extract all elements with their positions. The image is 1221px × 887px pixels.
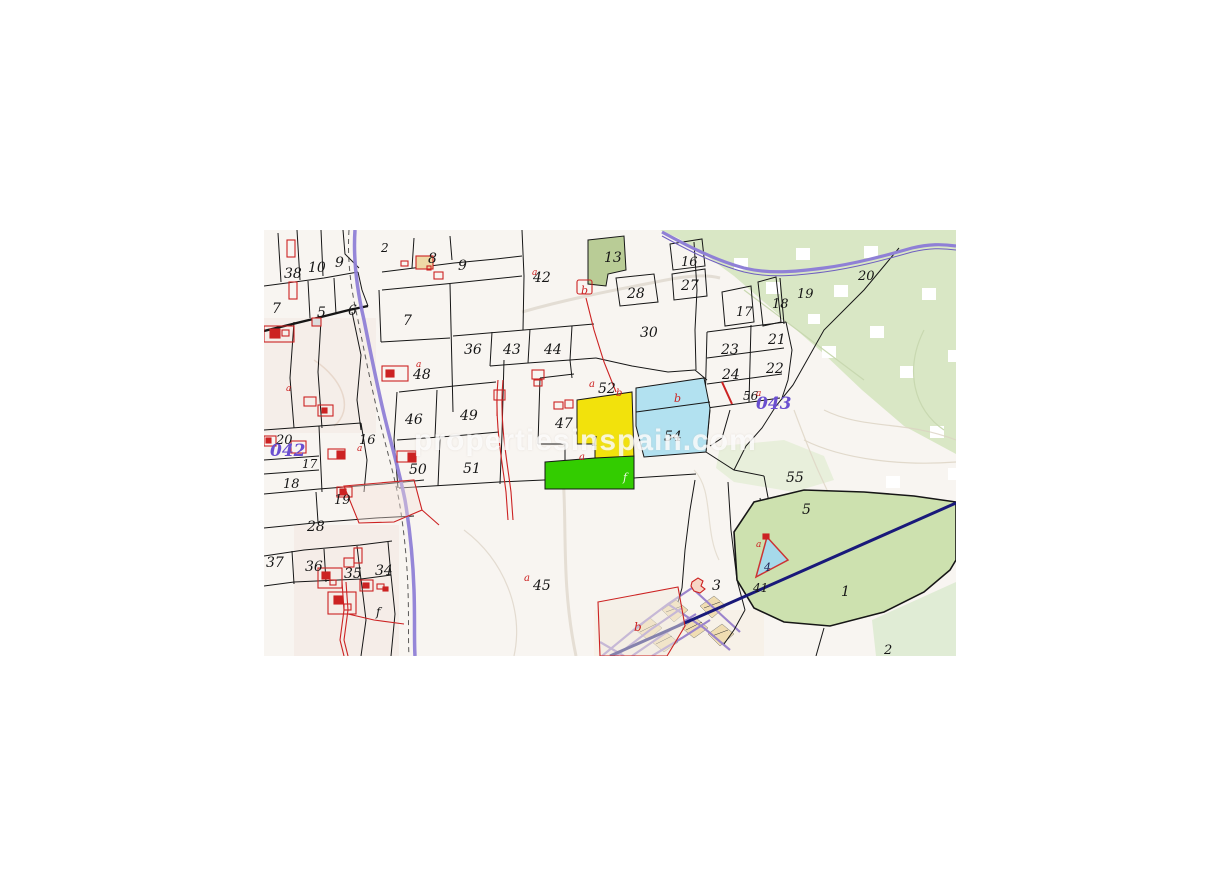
map-label-52: 52 bbox=[598, 381, 616, 397]
map-label-38: 38 bbox=[284, 266, 302, 282]
map-label-b: b bbox=[616, 388, 622, 399]
map-label-23: 23 bbox=[720, 342, 739, 358]
map-label-18: 18 bbox=[772, 297, 789, 312]
map-label-48: 48 bbox=[412, 367, 431, 383]
map-label-1: 1 bbox=[841, 584, 850, 600]
map-label-a: a bbox=[416, 360, 421, 370]
map-label-47: 47 bbox=[554, 416, 573, 432]
map-label-50: 50 bbox=[409, 462, 427, 478]
map-label-34: 34 bbox=[375, 563, 393, 579]
map-label-8: 8 bbox=[428, 251, 437, 267]
map-label-4: 4 bbox=[763, 561, 771, 574]
map-label-a: a bbox=[524, 573, 530, 584]
pond-corner-building bbox=[763, 534, 769, 539]
map-label-3: 3 bbox=[712, 578, 721, 594]
page-canvas: 3810927568973643444213281627301718192021… bbox=[0, 0, 1221, 887]
map-label-5: 5 bbox=[802, 502, 811, 518]
map-label-43: 43 bbox=[502, 342, 521, 358]
map-label-9: 9 bbox=[458, 258, 467, 274]
map-label-49: 49 bbox=[459, 408, 478, 424]
map-label-1: 1 bbox=[591, 435, 599, 450]
map-label-27: 27 bbox=[680, 278, 699, 294]
map-label-30: 30 bbox=[640, 325, 658, 341]
map-label-043: 043 bbox=[756, 394, 792, 414]
map-label-a: a bbox=[579, 452, 585, 463]
map-label-24: 24 bbox=[721, 367, 740, 383]
map-label-042: 042 bbox=[270, 441, 306, 461]
map-label-55: 55 bbox=[786, 470, 804, 486]
map-label-51: 51 bbox=[463, 461, 481, 477]
map-label-18: 18 bbox=[283, 477, 300, 492]
map-label-b: b bbox=[581, 284, 588, 297]
map-label-21: 21 bbox=[767, 332, 786, 348]
map-label-37: 37 bbox=[266, 555, 284, 571]
map-label-a: a bbox=[532, 268, 537, 278]
map-label-6: 6 bbox=[348, 303, 357, 319]
map-label-19: 19 bbox=[797, 287, 814, 302]
map-label-44: 44 bbox=[543, 342, 562, 358]
map-label-35: 35 bbox=[344, 566, 362, 582]
map-label-36: 36 bbox=[464, 342, 482, 358]
parcel-green-highlight[interactable] bbox=[545, 456, 634, 489]
map-label-28: 28 bbox=[626, 286, 645, 302]
map-label-36: 36 bbox=[305, 559, 323, 575]
map-label-28: 28 bbox=[306, 519, 325, 535]
map-label-b: b bbox=[634, 620, 642, 634]
map-label-45: 45 bbox=[532, 578, 551, 594]
map-label-41: 41 bbox=[752, 581, 768, 595]
cadastral-map[interactable]: 3810927568973643444213281627301718192021… bbox=[264, 230, 956, 656]
parcel-54-cyan-highlight[interactable] bbox=[636, 378, 710, 457]
cadastral-map-svg: 3810927568973643444213281627301718192021… bbox=[264, 230, 956, 656]
map-label-a: a bbox=[357, 444, 362, 454]
map-label-7: 7 bbox=[403, 313, 412, 329]
map-label-a: a bbox=[589, 379, 595, 390]
map-label-9: 9 bbox=[335, 255, 344, 271]
map-label-b: b bbox=[674, 392, 681, 405]
map-label-22: 22 bbox=[765, 361, 784, 377]
map-label-46: 46 bbox=[404, 412, 423, 428]
map-label-54: 54 bbox=[664, 429, 682, 445]
map-label-20: 20 bbox=[857, 269, 875, 284]
map-label-a: a bbox=[286, 384, 291, 394]
map-label-a: a bbox=[756, 540, 761, 550]
map-label-7: 7 bbox=[272, 301, 281, 317]
map-label-19: 19 bbox=[334, 493, 351, 508]
map-label-2: 2 bbox=[380, 241, 389, 255]
map-label-17: 17 bbox=[736, 305, 753, 320]
map-label-5: 5 bbox=[317, 305, 326, 321]
map-label-16: 16 bbox=[681, 255, 698, 270]
map-label-13: 13 bbox=[604, 250, 622, 266]
map-label-2: 2 bbox=[883, 643, 892, 656]
map-label-10: 10 bbox=[308, 260, 326, 276]
